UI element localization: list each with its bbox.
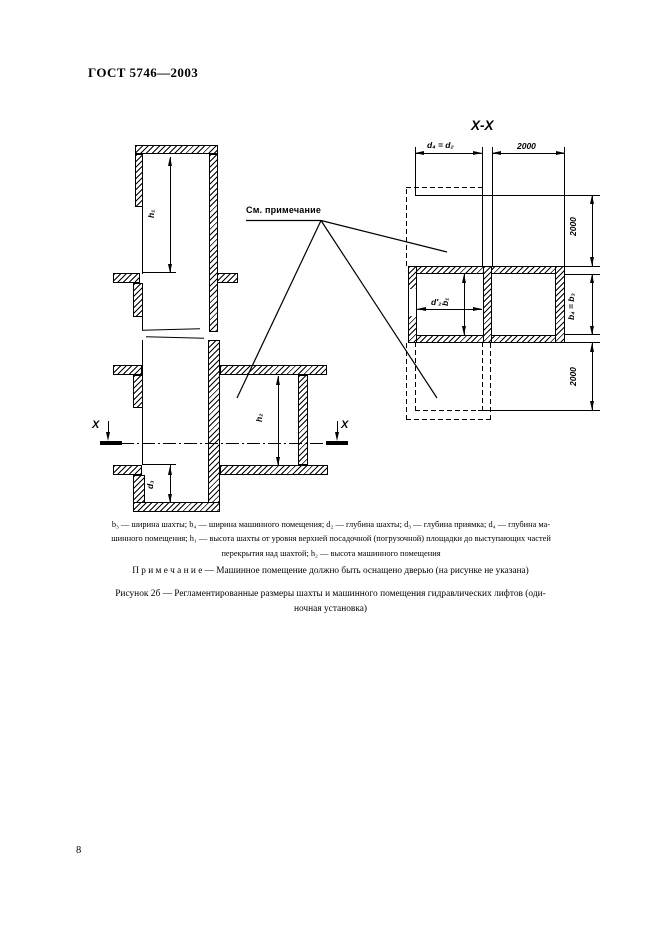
figure-caption-line-2: ночная установка)	[0, 602, 661, 617]
right-lower-2000-label: 2000	[568, 367, 578, 386]
h2-arrow-up	[276, 376, 280, 385]
lower-dashed-outer-bottom	[406, 419, 491, 420]
right-upper-2000-label: 2000	[568, 217, 578, 236]
right-upper-2000-line	[592, 195, 593, 266]
figure-2b-drawing: h₁ d₃ h₂ X X X-X d₄	[0, 0, 661, 936]
right-upper-2000-arrow-up	[590, 195, 594, 204]
cut-mark-left-bar	[100, 441, 122, 445]
upper-dashed-rect-top	[406, 187, 483, 188]
lower-dashed-inner-bottom	[415, 410, 483, 411]
landing-slab-left	[113, 273, 140, 283]
top-2000-dimension-line	[492, 153, 565, 154]
right-extension-d	[565, 342, 600, 343]
shaft-left-line	[142, 317, 143, 330]
inner-width-arrow-down	[462, 326, 466, 335]
top-2000-label: 2000	[517, 141, 536, 151]
right-lower-2000-arrow-down	[590, 401, 594, 410]
right-upper-2000-arrow-down	[590, 257, 594, 266]
lower-landing-slab-left	[113, 365, 142, 375]
section-centerline	[121, 443, 346, 444]
b4-eq-b3-arrow-up	[590, 274, 594, 283]
legend-line-1: b₃ — ширина шахты; b₄ — ширина машинного…	[68, 518, 594, 532]
extension-line-3	[492, 147, 493, 266]
right-lower-2000-line	[592, 343, 593, 410]
shaft-right-wall-top	[209, 154, 218, 332]
shaft-machine-dividing-wall	[208, 340, 220, 512]
h1-dimension-line	[170, 157, 171, 273]
plan-view-title: X-X	[471, 118, 494, 133]
right-extension-a	[565, 266, 600, 267]
upper-extension-line	[415, 195, 600, 196]
top-2000-arrow-left	[492, 151, 501, 155]
leader-lines	[0, 0, 661, 936]
d3-dimension-label: d₃	[145, 480, 155, 489]
shaft-left-wall-lower	[133, 375, 143, 408]
shaft-left-wall-top	[135, 154, 143, 207]
inner-depth-arrow-left	[417, 307, 426, 311]
inner-width-label: b₁	[440, 297, 450, 305]
d3-arrow-down	[168, 494, 172, 503]
leader-to-upper-dashed-room	[321, 221, 447, 253]
break-line-1	[142, 328, 200, 331]
lower-extension-line	[478, 410, 600, 411]
page-number: 8	[76, 845, 81, 856]
break-line-2	[146, 336, 204, 339]
lower-dashed-outer-right	[490, 343, 491, 420]
b4-eq-b3-label: b₄ = b₃	[566, 293, 576, 320]
d4-dimension-line	[415, 153, 482, 154]
figure-legend: b₃ — ширина шахты; b₄ — ширина машинного…	[68, 518, 594, 561]
right-lower-2000-arrow-up	[590, 343, 594, 352]
plan-middle-wall	[483, 266, 492, 343]
h2-dimension-label: h₂	[254, 413, 264, 421]
figure-caption-line-1: Рисунок 2б — Регламентированные размеры …	[0, 587, 661, 602]
right-extension-c	[565, 334, 600, 335]
d4-arrow-left	[415, 151, 424, 155]
pit-slab-left	[113, 465, 142, 475]
document-page: ГОСТ 5746—2003 h₁ d₃	[0, 0, 661, 936]
cut-mark-right-arrow	[335, 432, 339, 441]
h1-arrow-up	[168, 157, 172, 166]
cut-mark-right-label: X	[341, 419, 348, 431]
landing-slab-right	[217, 273, 238, 283]
figure-note: П р и м е ч а н и е — Машинное помещение…	[0, 566, 661, 576]
inner-depth-arrow-right	[473, 307, 482, 311]
plan-right-wall	[555, 266, 565, 343]
pit-level-line	[143, 464, 176, 465]
door-opening-line-upper	[142, 207, 143, 274]
right-extension-b	[565, 274, 600, 275]
d4-eq-d2-label: d₄ = d₂	[427, 140, 454, 150]
extension-line-4	[564, 147, 565, 266]
see-note-label: См. примечание	[246, 205, 321, 215]
lower-dashed-outer-left	[406, 343, 407, 420]
inner-width-arrow-up	[462, 274, 466, 283]
lower-dashed-inner-left	[415, 343, 416, 411]
h2-arrow-down	[276, 457, 280, 466]
machine-room-ceiling	[220, 365, 327, 375]
h1-arrow-down	[168, 264, 172, 273]
cut-mark-left-arrow	[106, 432, 110, 441]
machine-room-floor	[220, 465, 328, 475]
machine-room-right-wall	[298, 375, 308, 465]
figure-caption: Рисунок 2б — Регламентированные размеры …	[0, 587, 661, 616]
d4-arrow-right	[473, 151, 482, 155]
legend-line-3: перекрытия над шахтой; h₂ — высота машин…	[68, 547, 594, 561]
plan-door-opening	[408, 289, 417, 316]
cut-mark-left-label: X	[92, 419, 99, 431]
b4-eq-b3-arrow-down	[590, 326, 594, 335]
lower-dashed-inner-right	[482, 343, 483, 411]
d3-arrow-up	[168, 466, 172, 475]
shaft-top-slab	[135, 145, 218, 154]
legend-line-2: шинного помещения; h₁ — высота шахты от …	[68, 532, 594, 546]
extension-line-2	[482, 147, 483, 266]
upper-dashed-rect-left	[406, 187, 407, 266]
pit-bottom-slab	[133, 502, 220, 512]
h1-dimension-label: h₁	[146, 209, 156, 217]
shaft-left-wall-mid	[133, 283, 143, 317]
cut-mark-right-bar	[326, 441, 348, 445]
h2-dimension-line	[278, 376, 279, 465]
